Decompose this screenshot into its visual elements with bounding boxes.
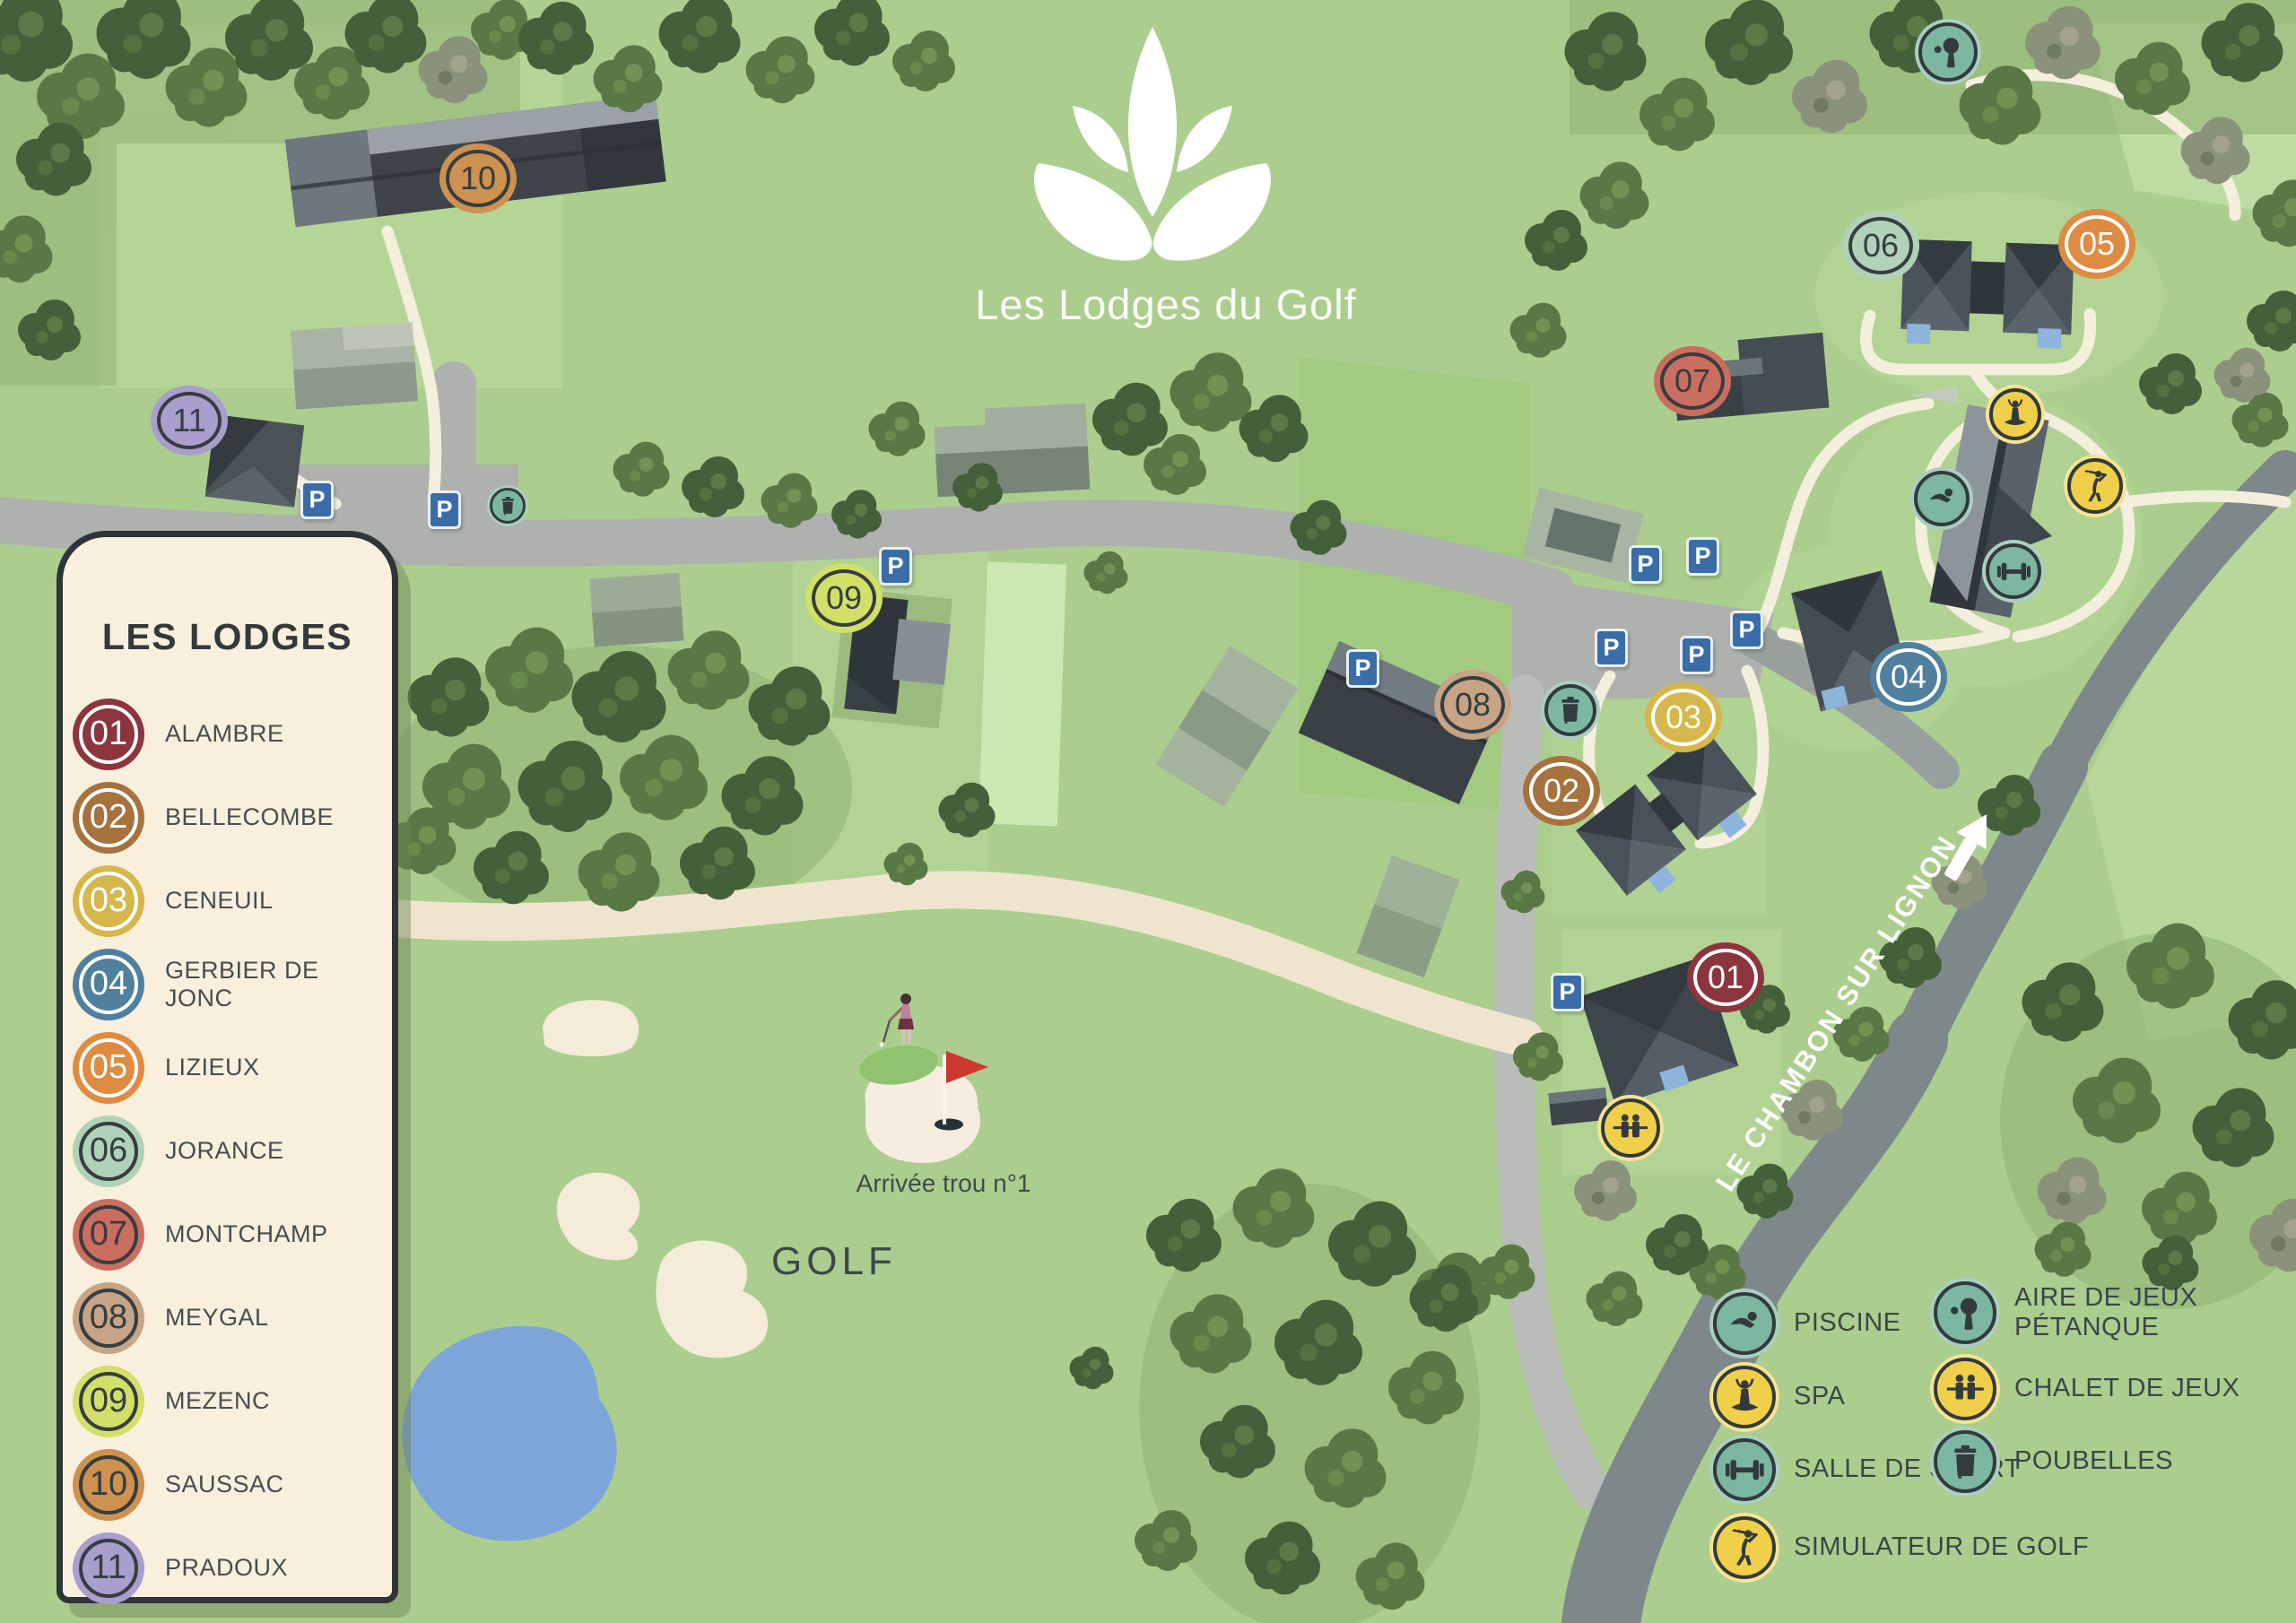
lodge-07-badge: 07 [73,1199,144,1271]
lodge-legend-row-03: 03 CENEUIL [63,859,392,942]
lodge-11-badge: 11 [73,1532,144,1604]
lodge-04-badge: 04 [73,949,144,1020]
amenity-label: POUBELLES [2014,1446,2173,1476]
flag-pole [943,1055,946,1124]
lodge-legend-row-11: 11 PRADOUX [63,1526,392,1610]
golf-hole [935,1119,963,1131]
outbuilding [291,322,418,409]
parking-sign: P [300,481,334,519]
lodge-03-badge: 03 [73,865,144,937]
poubelles-icon [1541,681,1600,740]
chalet-de-jeux-icon [1597,1095,1664,1161]
lodge-02-badge: 02 [73,782,144,854]
map-title: Les Lodges du Golf [879,280,1453,329]
lodge-legend-panel: LES LODGES 01 ALAMBRE 02 BELLECOMBE 03 C… [57,531,398,1603]
amenity-label: SPA [1794,1382,1845,1411]
amenity-label: AIRE DE JEUX PÉTANQUE [2014,1283,2197,1343]
lodge-legend-row-02: 02 BELLECOMBE [63,776,392,859]
lodge-legend-row-06: 06 JORANCE [63,1109,392,1193]
chalet-de-jeux-icon [1930,1354,2000,1424]
map-marker-lodge-09: 09 [805,563,883,633]
golf-cart-path [269,890,1525,1038]
hazy-building-left [589,573,683,647]
amenity-legend-row-spa: SPA [1709,1362,1845,1432]
lodge-03-name: CENEUIL [165,887,274,915]
lodge-legend-row-01: 01 ALAMBRE [63,692,392,776]
lodge-06-badge: 06 [73,1115,144,1187]
map-marker-lodge-08: 08 [1434,670,1511,740]
map-marker-lodge-05: 05 [2058,209,2135,279]
map-marker-lodge-01: 01 [1687,942,1764,1012]
lodge-07-name: MONTCHAMP [165,1220,328,1248]
poubelles-icon [1930,1427,2000,1497]
simulateur-golf-icon [1709,1513,1779,1583]
lodge-09-badge: 09 [73,1366,144,1437]
lodge-01-badge: 01 [73,699,144,770]
lodge-11-name: PRADOUX [165,1554,288,1582]
map-marker-lodge-03: 03 [1645,682,1722,752]
spa-icon [1986,385,2045,444]
amenity-legend-row-poubelles: POUBELLES [1930,1427,2173,1497]
lodge-legend-row-10: 10 SAUSSAC [63,1443,392,1526]
lodge-01-name: ALAMBRE [165,720,284,748]
spa-icon [1709,1362,1779,1432]
piscine-icon [1709,1289,1779,1358]
parking-sign: P [1730,611,1763,649]
lodge-08-badge: 08 [73,1282,144,1354]
lodge-legend-title: LES LODGES [63,616,392,658]
golfer-figure [880,994,915,1047]
lodge-02-name: BELLECOMBE [165,803,334,831]
salle-de-sport-icon [1709,1435,1779,1505]
map-marker-lodge-07: 07 [1654,346,1731,416]
amenity-legend-row-chalet: CHALET DE JEUX [1930,1354,2239,1424]
golf-area-label: GOLF [771,1239,969,1284]
map-marker-lodge-02: 02 [1523,756,1600,826]
simulateur-golf-icon [2064,455,2126,517]
lodge-legend-row-05: 05 LIZIEUX [63,1026,392,1109]
parking-sign: P [1680,636,1713,674]
lodge-10-name: SAUSSAC [165,1471,284,1498]
flag [946,1051,988,1083]
amenity-legend-row-petanque: AIRE DE JEUX PÉTANQUE [1930,1278,2197,1348]
map-marker-lodge-10: 10 [439,143,517,213]
parking-sign: P [1686,537,1719,576]
lodge-10-badge: 10 [73,1449,144,1521]
lodge-06-name: JORANCE [165,1137,284,1165]
resort-map-page: { "header": { "title": "Les Lodges du Go… [0,0,2296,1623]
lodge-05-badge: 05 [73,1032,144,1104]
amenity-label: PISCINE [1794,1308,1901,1338]
parking-sign: P [1595,629,1628,667]
lodge-05-name: LIZIEUX [165,1054,260,1081]
poubelles-icon [487,485,528,526]
aire-de-jeux-petanque-icon [1930,1278,2000,1348]
parking-sign: P [1551,973,1584,1011]
hole-arrival-label: Arrivée trou n°1 [764,1169,1123,1198]
amenity-label: CHALET DE JEUX [2014,1374,2239,1403]
parking-sign: P [1346,649,1379,688]
parking-sign: P [428,490,461,529]
amenity-label: SIMULATEUR DE GOLF [1794,1532,2089,1562]
lodges-du-golf-logo [1004,16,1309,276]
map-marker-lodge-11: 11 [151,386,228,456]
parking-sign: P [1629,545,1662,584]
hazy-building-golf [1156,646,1299,807]
lodge-04-name: GERBIER DE JONC [165,957,392,1012]
amenity-legend-row-piscine: PISCINE [1709,1289,1901,1358]
pond [402,1326,616,1541]
parking-sign: P [879,547,912,586]
hazy-building-low [1357,855,1460,977]
lodge-legend-row-09: 09 MEZENC [63,1359,392,1443]
lodge-legend-row-04: 04 GERBIER DE JONC [63,942,392,1026]
piscine-icon [1910,467,1973,530]
lodge-legend-row-07: 07 MONTCHAMP [63,1193,392,1276]
amenity-legend-row-simulateur: SIMULATEUR DE GOLF [1709,1513,2089,1583]
lodge-legend-row-08: 08 MEYGAL [63,1276,392,1359]
lodge-legend-list: 01 ALAMBRE 02 BELLECOMBE 03 CENEUIL 04 G… [63,692,392,1610]
map-marker-lodge-04: 04 [1870,642,1947,712]
salle-de-sport-icon [1982,540,2045,603]
lodge-09-name: MEZENC [165,1387,270,1415]
map-marker-lodge-06: 06 [1842,211,1919,281]
aire-de-jeux-petanque-icon [1915,19,1981,85]
lodge-08-name: MEYGAL [165,1304,269,1332]
